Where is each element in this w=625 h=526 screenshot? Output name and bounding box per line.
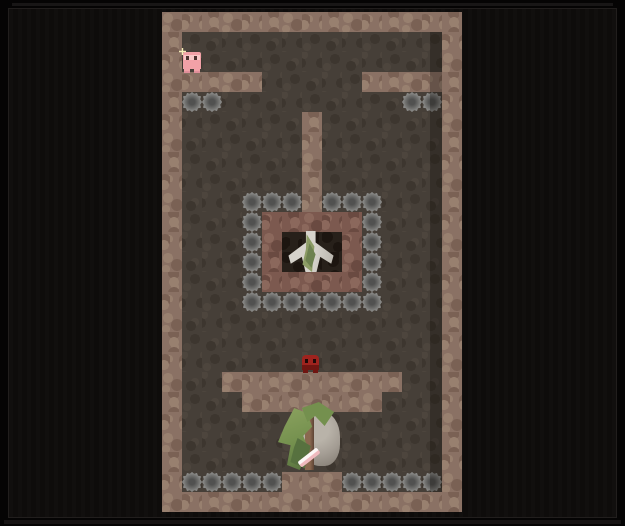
tile-wall — [442, 52, 462, 72]
tile-floor — [322, 92, 342, 112]
tile-floor — [382, 272, 402, 292]
tile-floor — [382, 52, 402, 72]
tile-floor — [382, 92, 402, 112]
tile-floor — [262, 32, 282, 52]
tile-wall — [162, 492, 182, 512]
tile-floor — [322, 52, 342, 72]
tile-floor — [222, 52, 242, 72]
tile-floor — [342, 112, 362, 132]
tile-wall — [442, 172, 462, 192]
tile-wall — [442, 352, 462, 372]
tile-floor — [262, 172, 282, 192]
tile-floor — [182, 32, 202, 52]
tile-boulder — [262, 472, 282, 492]
window-top-highlight — [12, 3, 613, 6]
tile-brick-structure-wall — [262, 272, 282, 292]
tile-boulder — [242, 472, 262, 492]
tile-floor — [362, 332, 382, 352]
tile-wall — [442, 372, 462, 392]
tile-boulder — [262, 292, 282, 312]
tile-floor — [282, 352, 302, 372]
tile-boulder — [342, 292, 362, 312]
tile-wall — [162, 372, 182, 392]
tile-floor — [362, 152, 382, 172]
tile-floor — [182, 312, 202, 332]
tile-boulder — [362, 292, 382, 312]
tile-floor — [362, 112, 382, 132]
tile-floor — [202, 412, 222, 432]
game-stage — [0, 0, 625, 526]
tile-wall — [182, 12, 202, 32]
tile-floor — [222, 252, 242, 272]
tile-boulder — [402, 472, 422, 492]
tile-boulder — [182, 92, 202, 112]
tile-floor — [222, 312, 242, 332]
tile-wall — [162, 152, 182, 172]
tile-wall — [422, 12, 442, 32]
tile-boulder — [242, 212, 262, 232]
tile-floor — [222, 412, 242, 432]
tile-boulder — [182, 472, 202, 492]
tile-floor — [362, 432, 382, 452]
tile-floor — [402, 132, 422, 152]
tile-floor — [362, 132, 382, 152]
tile-floor — [342, 92, 362, 112]
tile-floor — [402, 292, 422, 312]
tile-floor — [382, 192, 402, 212]
tile-boulder — [342, 472, 362, 492]
tile-floor — [242, 152, 262, 172]
tile-floor — [202, 172, 222, 192]
tile-floor — [282, 172, 302, 192]
tile-floor — [382, 172, 402, 192]
tile-floor — [382, 212, 402, 232]
tile-wall — [302, 152, 322, 172]
tile-floor — [342, 72, 362, 92]
tile-wall — [222, 12, 242, 32]
tile-wall — [162, 272, 182, 292]
tile-floor — [202, 292, 222, 312]
tile-floor — [242, 132, 262, 152]
tile-floor — [242, 172, 262, 192]
tile-boulder — [242, 292, 262, 312]
tile-floor — [262, 412, 282, 432]
tile-brick-structure-wall — [322, 272, 342, 292]
tile-wall — [162, 52, 182, 72]
tile-floor — [242, 312, 262, 332]
tile-boulder — [302, 292, 322, 312]
tile-floor — [322, 32, 342, 52]
tile-wall — [162, 252, 182, 272]
tile-floor — [402, 112, 422, 132]
bush-with-sword[interactable] — [280, 404, 342, 472]
tile-floor — [302, 72, 322, 92]
tile-floor — [322, 312, 342, 332]
tile-floor — [182, 452, 202, 472]
tile-floor — [182, 252, 202, 272]
tile-floor — [202, 452, 222, 472]
tile-floor — [182, 112, 202, 132]
tile-floor — [322, 152, 342, 172]
tile-wall — [302, 192, 322, 212]
tile-wall — [262, 392, 282, 412]
window-bottom-edge — [4, 520, 621, 524]
tile-boulder — [202, 472, 222, 492]
tile-floor — [402, 272, 422, 292]
tile-floor — [182, 372, 202, 392]
tile-floor — [202, 152, 222, 172]
tile-brick-structure-wall — [322, 212, 342, 232]
tile-floor — [382, 112, 402, 132]
tile-floor — [402, 232, 422, 252]
tile-floor — [242, 332, 262, 352]
tile-boulder — [262, 192, 282, 212]
tile-wall — [382, 72, 402, 92]
tile-wall — [162, 412, 182, 432]
tile-boulder — [242, 252, 262, 272]
tile-brick-structure-wall — [342, 212, 362, 232]
tile-brick-structure-wall — [302, 212, 322, 232]
tile-floor — [402, 32, 422, 52]
tile-floor — [322, 72, 342, 92]
tile-floor — [222, 272, 242, 292]
tile-wall — [442, 452, 462, 472]
tile-floor — [402, 432, 422, 452]
tile-floor — [222, 152, 242, 172]
tile-wall — [402, 12, 422, 32]
tile-boulder — [362, 472, 382, 492]
tile-floor — [262, 132, 282, 152]
tile-wall — [162, 92, 182, 112]
tile-floor — [262, 112, 282, 132]
pig-creature[interactable] — [183, 52, 201, 73]
tile-floor — [382, 332, 402, 352]
tile-wall — [362, 492, 382, 512]
imp-eye — [313, 359, 316, 363]
tile-wall — [442, 312, 462, 332]
tile-floor — [262, 352, 282, 372]
tile-wall — [282, 372, 302, 392]
pig-eye — [186, 56, 189, 60]
tile-floor — [402, 332, 422, 352]
tile-floor — [362, 32, 382, 52]
tile-floor — [282, 92, 302, 112]
tile-floor — [282, 132, 302, 152]
tile-floor — [382, 152, 402, 172]
tile-boulder — [242, 232, 262, 252]
tile-floor — [322, 112, 342, 132]
tile-wall — [282, 12, 302, 32]
tile-floor — [182, 352, 202, 372]
tile-floor — [182, 432, 202, 452]
tile-floor — [182, 212, 202, 232]
tile-wall — [442, 272, 462, 292]
tile-floor — [202, 372, 222, 392]
tile-floor — [282, 112, 302, 132]
tile-floor — [382, 232, 402, 252]
tile-wall — [262, 12, 282, 32]
tile-floor — [222, 452, 242, 472]
tile-floor — [342, 412, 362, 432]
tile-brick-structure-wall — [262, 252, 282, 272]
tile-floor — [242, 92, 262, 112]
tile-wall — [442, 132, 462, 152]
tile-wall — [382, 372, 402, 392]
tile-floor — [222, 232, 242, 252]
tile-boulder — [362, 212, 382, 232]
tile-floor — [402, 172, 422, 192]
tile-boulder — [282, 192, 302, 212]
tile-floor — [342, 32, 362, 52]
tile-floor — [182, 332, 202, 352]
tile-floor — [362, 452, 382, 472]
tile-wall — [442, 12, 462, 32]
tile-wall — [162, 172, 182, 192]
tile-wall — [362, 372, 382, 392]
tile-brick-structure-wall — [282, 272, 302, 292]
imp-eye — [305, 359, 308, 363]
tile-floor — [382, 412, 402, 432]
tile-floor — [182, 152, 202, 172]
tile-floor — [402, 452, 422, 472]
tile-floor — [282, 32, 302, 52]
tile-wall — [322, 12, 342, 32]
tile-wall — [382, 492, 402, 512]
tile-boulder — [342, 192, 362, 212]
tile-floor — [262, 452, 282, 472]
tile-floor — [402, 252, 422, 272]
imp-creature[interactable] — [302, 355, 319, 373]
tile-floor — [202, 432, 222, 452]
tile-floor — [222, 432, 242, 452]
tile-wall — [442, 112, 462, 132]
tile-wall — [342, 12, 362, 32]
tile-floor — [302, 92, 322, 112]
tile-floor — [202, 232, 222, 252]
tile-wall — [242, 492, 262, 512]
tile-boulder — [282, 292, 302, 312]
tile-wall — [442, 252, 462, 272]
tile-wall — [282, 492, 302, 512]
tile-floor — [322, 132, 342, 152]
tile-wall — [162, 232, 182, 252]
tile-floor — [342, 172, 362, 192]
tile-wall — [162, 352, 182, 372]
tile-floor — [202, 32, 222, 52]
tile-floor — [202, 312, 222, 332]
tile-boulder — [242, 192, 262, 212]
tile-floor — [242, 112, 262, 132]
tile-floor — [202, 252, 222, 272]
tile-wall — [242, 392, 262, 412]
tile-wall — [182, 492, 202, 512]
tile-wall — [162, 32, 182, 52]
tile-floor — [282, 152, 302, 172]
tile-brick-structure-wall — [262, 232, 282, 252]
tile-wall — [302, 12, 322, 32]
tile-wall — [302, 472, 322, 492]
tile-floor — [202, 52, 222, 72]
tile-floor — [262, 92, 282, 112]
tile-boulder — [362, 252, 382, 272]
tile-floor — [222, 32, 242, 52]
tile-wall — [202, 72, 222, 92]
tile-floor — [182, 412, 202, 432]
tile-floor — [202, 192, 222, 212]
tile-floor — [282, 72, 302, 92]
imp-leg — [303, 370, 308, 373]
pig-leg — [194, 66, 200, 73]
tile-brick-structure-wall — [342, 272, 362, 292]
pig-leg — [184, 66, 190, 73]
tile-floor — [402, 152, 422, 172]
tile-floor — [402, 312, 422, 332]
tile-wall — [202, 12, 222, 32]
tile-floor — [382, 352, 402, 372]
tile-wall — [222, 492, 242, 512]
tile-floor — [282, 332, 302, 352]
tile-brick-structure-wall — [302, 272, 322, 292]
tile-wall — [262, 492, 282, 512]
tile-floor — [322, 172, 342, 192]
tile-wall — [442, 32, 462, 52]
tile-boulder — [402, 92, 422, 112]
tile-floor — [342, 152, 362, 172]
tile-wall — [162, 72, 182, 92]
tile-floor — [202, 332, 222, 352]
tile-wall — [162, 192, 182, 212]
tile-wall — [302, 492, 322, 512]
tile-floor — [362, 352, 382, 372]
tile-boulder — [322, 292, 342, 312]
tile-wall — [342, 392, 362, 412]
tile-wall — [262, 372, 282, 392]
tile-wall — [382, 12, 402, 32]
tile-wall — [162, 392, 182, 412]
tile-floor — [182, 232, 202, 252]
tile-floor — [302, 52, 322, 72]
tile-boulder — [242, 272, 262, 292]
tile-floor — [342, 352, 362, 372]
tile-floor — [302, 312, 322, 332]
tile-floor — [362, 52, 382, 72]
tile-wall — [442, 92, 462, 112]
tile-floor — [402, 212, 422, 232]
tile-floor — [322, 352, 342, 372]
tile-floor — [222, 132, 242, 152]
tile-floor — [182, 172, 202, 192]
tile-floor — [382, 292, 402, 312]
tile-wall — [162, 452, 182, 472]
tile-floor — [242, 52, 262, 72]
winged-statue — [288, 231, 334, 272]
tile-wall — [242, 72, 262, 92]
tile-floor — [242, 452, 262, 472]
tile-floor — [302, 332, 322, 352]
tile-brick-structure-wall — [262, 212, 282, 232]
tile-floor — [362, 312, 382, 332]
tile-brick-structure-wall — [342, 232, 362, 252]
tile-wall — [162, 332, 182, 352]
tile-wall — [162, 432, 182, 452]
pig-eye — [194, 56, 197, 60]
tile-floor — [182, 272, 202, 292]
tile-wall — [162, 212, 182, 232]
tile-wall — [162, 312, 182, 332]
tile-boulder — [362, 272, 382, 292]
tile-floor — [362, 92, 382, 112]
tile-floor — [202, 392, 222, 412]
tile-floor — [262, 152, 282, 172]
tile-wall — [362, 72, 382, 92]
tile-wall — [402, 492, 422, 512]
tile-wall — [162, 292, 182, 312]
tile-floor — [342, 312, 362, 332]
tile-floor — [222, 172, 242, 192]
tile-wall — [162, 472, 182, 492]
tile-floor — [222, 332, 242, 352]
tile-floor — [342, 52, 362, 72]
tile-floor — [402, 52, 422, 72]
tile-boulder — [382, 472, 402, 492]
tile-floor — [342, 432, 362, 452]
tile-wall — [302, 372, 322, 392]
tile-boulder — [362, 232, 382, 252]
tile-wall — [162, 112, 182, 132]
tile-floor — [302, 32, 322, 52]
tile-floor — [402, 192, 422, 212]
tile-floor — [322, 332, 342, 352]
tile-wall — [322, 472, 342, 492]
tile-floor — [382, 452, 402, 472]
imp-leg — [313, 370, 318, 373]
tile-wall — [442, 192, 462, 212]
tile-wall — [442, 472, 462, 492]
tile-wall — [302, 112, 322, 132]
tile-wall — [162, 132, 182, 152]
tile-wall — [222, 72, 242, 92]
tile-floor — [242, 32, 262, 52]
tile-floor — [222, 292, 242, 312]
tile-floor — [402, 412, 422, 432]
tile-floor — [382, 32, 402, 52]
tile-wall — [202, 492, 222, 512]
tile-wall — [442, 232, 462, 252]
tile-brick-structure-wall — [282, 212, 302, 232]
tile-wall — [442, 292, 462, 312]
tile-floor — [362, 172, 382, 192]
tile-wall — [442, 392, 462, 412]
tile-wall — [182, 72, 202, 92]
tile-floor — [182, 192, 202, 212]
tile-floor — [242, 352, 262, 372]
tile-wall — [322, 492, 342, 512]
tile-floor — [182, 292, 202, 312]
tile-floor — [202, 112, 222, 132]
tile-floor — [402, 392, 422, 412]
tile-floor — [402, 352, 422, 372]
tile-boulder — [362, 192, 382, 212]
tile-floor — [282, 52, 302, 72]
tile-floor — [222, 352, 242, 372]
tile-floor — [202, 132, 222, 152]
tile-floor — [222, 212, 242, 232]
tile-floor — [222, 112, 242, 132]
tile-floor — [342, 452, 362, 472]
tile-wall — [402, 72, 422, 92]
tile-floor — [202, 212, 222, 232]
tile-wall — [302, 132, 322, 152]
